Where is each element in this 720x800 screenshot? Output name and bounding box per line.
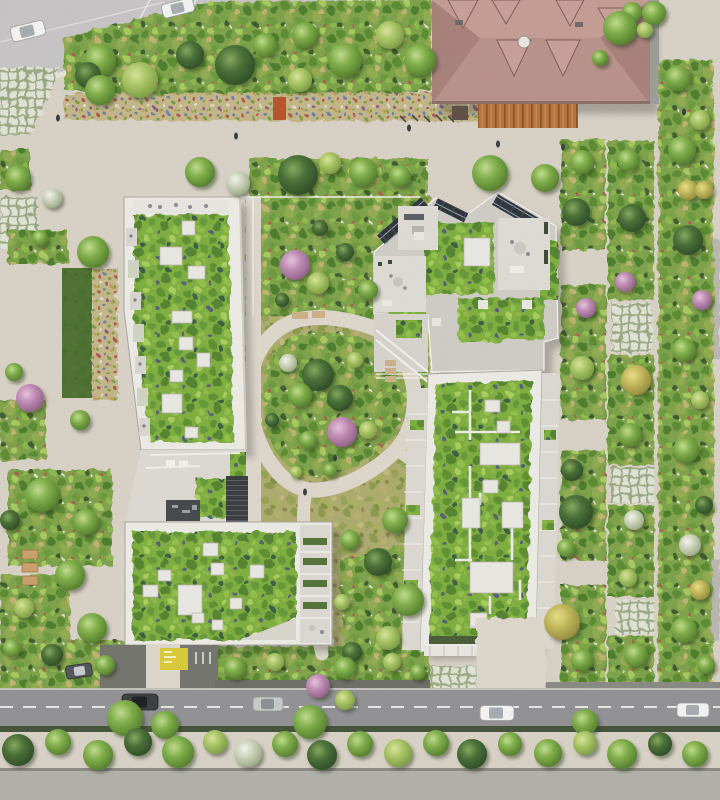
film-grain-overlay [0, 0, 720, 800]
aerial-site-rendering [0, 0, 720, 800]
site-plan-canvas [0, 0, 720, 800]
